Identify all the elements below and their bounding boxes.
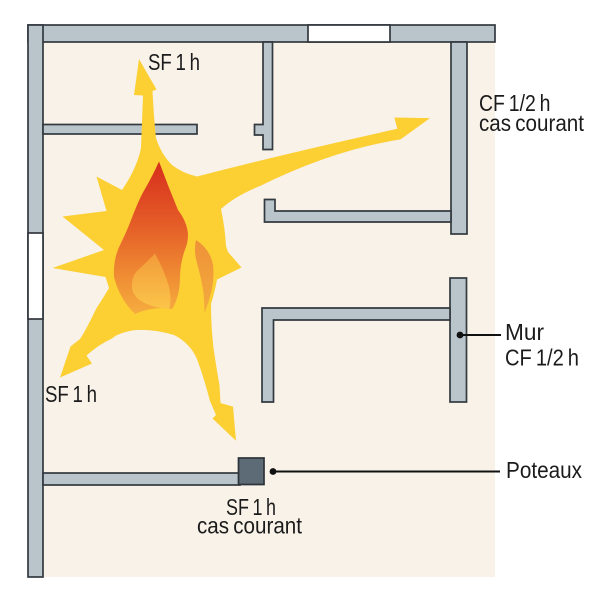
svg-text:cas courant: cas courant: [197, 513, 302, 539]
svg-text:CF 1/2 h: CF 1/2 h: [505, 345, 579, 371]
svg-text:Mur: Mur: [505, 319, 544, 345]
svg-text:cas courant: cas courant: [479, 110, 584, 136]
svg-text:SF 1 h: SF 1 h: [148, 49, 200, 75]
svg-text:SF 1 h: SF 1 h: [45, 381, 97, 407]
svg-text:Poteaux: Poteaux: [506, 457, 582, 483]
